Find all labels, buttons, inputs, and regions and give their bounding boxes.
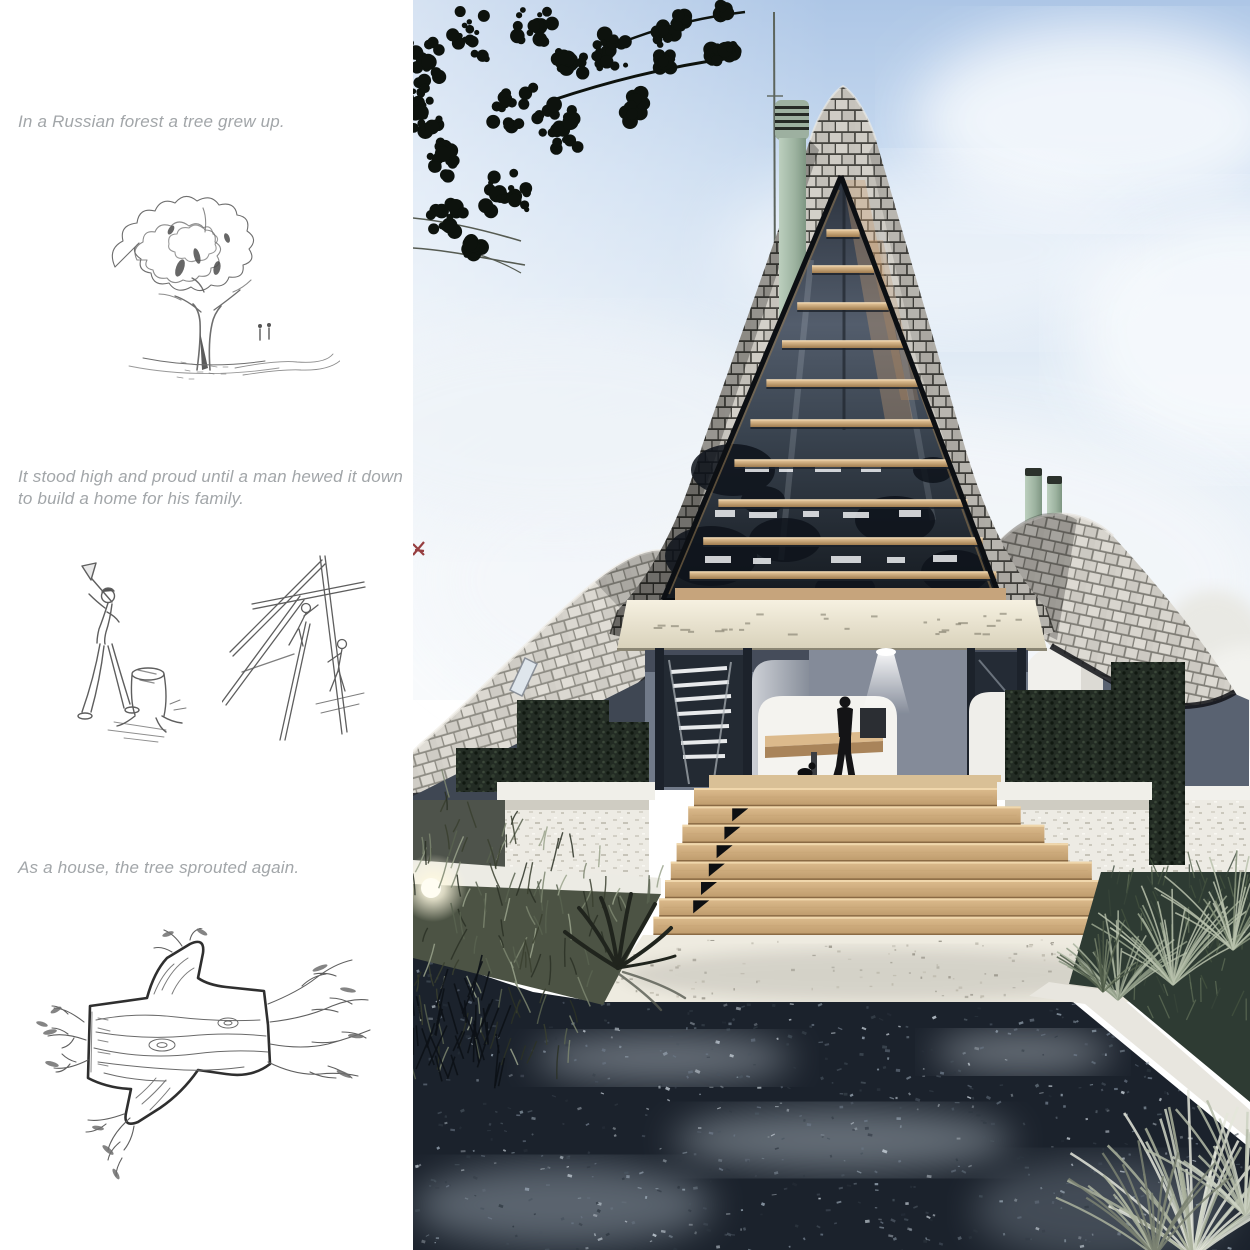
story-caption-2: It stood high and proud until a man hewe… [18, 466, 414, 511]
garden-lamp [421, 878, 441, 898]
framing-sketch-illustration [222, 552, 372, 744]
tree-sketch-illustration [85, 172, 340, 387]
story-caption-3: As a house, the tree sprouted again. [18, 857, 398, 879]
rendering-panel [413, 0, 1250, 1250]
architectural-rendering [413, 0, 1250, 1250]
story-panel: In a Russian forest a tree grew up. [0, 0, 413, 1250]
entry-glass-left [661, 655, 743, 787]
presentation-board: In a Russian forest a tree grew up. [0, 0, 1250, 1250]
log-sketch-illustration [12, 928, 382, 1228]
fascia [617, 588, 1047, 651]
entry-level [645, 648, 1028, 790]
felling-sketch-illustration [38, 558, 203, 748]
story-caption-1: In a Russian forest a tree grew up. [18, 111, 398, 133]
